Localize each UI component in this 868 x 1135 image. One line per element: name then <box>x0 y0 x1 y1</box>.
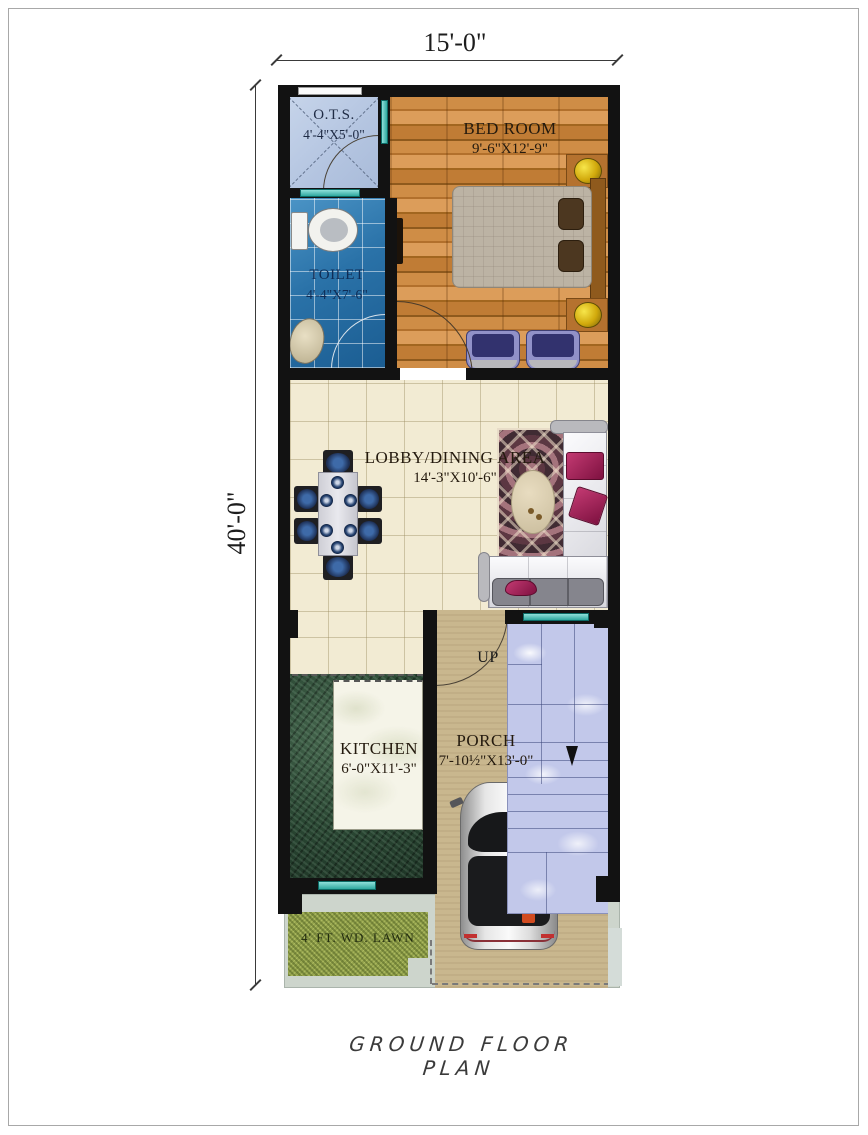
wall-pillar-bottomleft <box>278 890 302 914</box>
bed-pillow <box>558 240 584 272</box>
window-top <box>298 87 362 95</box>
chair-seat <box>472 334 514 357</box>
wall-pillar-stairs-topright <box>594 610 620 628</box>
porch-label: PORCH 7'-10½"X13'-0" <box>424 730 548 772</box>
window-stairs-top <box>523 613 589 621</box>
room-size: 4'-4"X7'-6" <box>288 286 386 304</box>
bedroom-chair <box>526 330 580 370</box>
table-lamp-bottom <box>574 302 602 328</box>
pavement-strip-right <box>608 928 622 986</box>
dinner-plate <box>320 524 333 537</box>
chair-seat <box>359 489 379 509</box>
chair-seat <box>326 557 350 577</box>
dining-chair <box>294 486 320 512</box>
stair-line <box>508 852 609 853</box>
kitchen-dashed-line <box>292 674 423 676</box>
room-name: PORCH <box>424 730 548 752</box>
stair-line <box>574 624 575 742</box>
toilet-tank <box>291 212 308 250</box>
stairs-direction-text: UP <box>468 648 508 669</box>
stair-line <box>546 852 547 914</box>
sofa-armrest-left <box>478 552 490 602</box>
top-dimension-line <box>276 60 618 61</box>
room-name: TOILET <box>288 266 386 286</box>
lawn-text: 4' FT. WD. LAWN <box>288 930 428 947</box>
bedroom-label: BED ROOM 9'-6"X12'-9" <box>425 118 595 160</box>
wall-bedroom-bottom <box>466 368 620 380</box>
lobby-label: LOBBY/DINING AREA 14'-3"X10'-6" <box>330 447 580 489</box>
plan-title: GROUND FLOOR PLAN <box>327 1032 592 1080</box>
dinner-plate <box>320 494 333 507</box>
lobby-tile-floor-extension <box>290 612 423 676</box>
wall-lobby-left-pillar <box>278 610 298 638</box>
stair-tread-line <box>508 828 609 829</box>
dinner-plate <box>344 524 357 537</box>
wall-left <box>278 85 290 892</box>
bed-headboard <box>590 178 606 302</box>
toilet-label: TOILET 4'-4"X7'-6" <box>288 266 386 303</box>
stair-tread-line <box>508 811 609 812</box>
room-name: O.T.S. <box>288 106 380 126</box>
stair-direction-arrow-icon <box>566 746 578 766</box>
stair-tread-line <box>508 777 609 778</box>
dining-chair <box>356 486 382 512</box>
coffee-table-decor <box>536 514 542 520</box>
wall-pillar-bottomright <box>596 876 620 902</box>
boundary-dashed-bottom <box>432 983 620 985</box>
wall-right <box>608 85 620 892</box>
car-taillight <box>541 934 554 938</box>
chair-seat <box>359 521 379 541</box>
room-size: 6'-0"X11'-3" <box>320 760 438 780</box>
stair-line <box>508 704 609 705</box>
room-size: 7'-10½"X13'-0" <box>424 752 548 772</box>
sofa-bow-pillow <box>505 580 537 596</box>
dinner-plate <box>344 494 357 507</box>
room-name: KITCHEN <box>320 738 438 760</box>
kitchen-label: KITCHEN 6'-0"X11'-3" <box>320 738 438 780</box>
window-ots-bottom <box>300 189 360 197</box>
chair-seat <box>532 334 574 357</box>
room-name: LOBBY/DINING AREA <box>330 447 580 469</box>
dining-chair <box>356 518 382 544</box>
room-name: BED ROOM <box>425 118 595 140</box>
up-label: UP <box>468 648 508 669</box>
room-size: 14'-3"X10'-6" <box>330 469 580 489</box>
boundary-dashed-left <box>430 940 432 984</box>
bedroom-chair <box>466 330 520 370</box>
chair-front <box>469 360 517 368</box>
stair-line <box>508 664 542 665</box>
lawn-label: 4' FT. WD. LAWN <box>288 930 428 947</box>
bed-pillow <box>558 198 584 230</box>
window-kitchen-bottom <box>318 881 376 890</box>
toilet-bowl-inner <box>320 218 348 242</box>
chair-seat <box>297 489 317 509</box>
dinner-plate <box>331 541 344 554</box>
room-size: 9'-6"X12'-9" <box>425 140 595 160</box>
room-size: 4'-4"X5'-0" <box>288 126 380 144</box>
window-ots-right <box>381 100 388 144</box>
wall-toilet-right <box>385 198 397 378</box>
chair-front <box>529 360 577 368</box>
dining-chair <box>323 554 353 580</box>
chair-seat <box>297 521 317 541</box>
dining-chair <box>294 518 320 544</box>
stair-tread-line <box>508 794 609 795</box>
coffee-table-decor <box>528 508 534 514</box>
car-rear-light-dot <box>522 913 535 923</box>
left-dimension-line <box>255 85 256 985</box>
car-taillight <box>464 934 477 938</box>
wall-toilet-bottom <box>278 368 400 380</box>
top-dimension-label: 15'-0" <box>380 28 530 58</box>
pavement-notch <box>408 958 428 976</box>
floor-plan-canvas: 15'-0" 40'-0" <box>0 0 868 1135</box>
ots-label: O.T.S. 4'-4"X5'-0" <box>288 106 380 143</box>
left-dimension-label: 40'-0" <box>222 448 252 598</box>
